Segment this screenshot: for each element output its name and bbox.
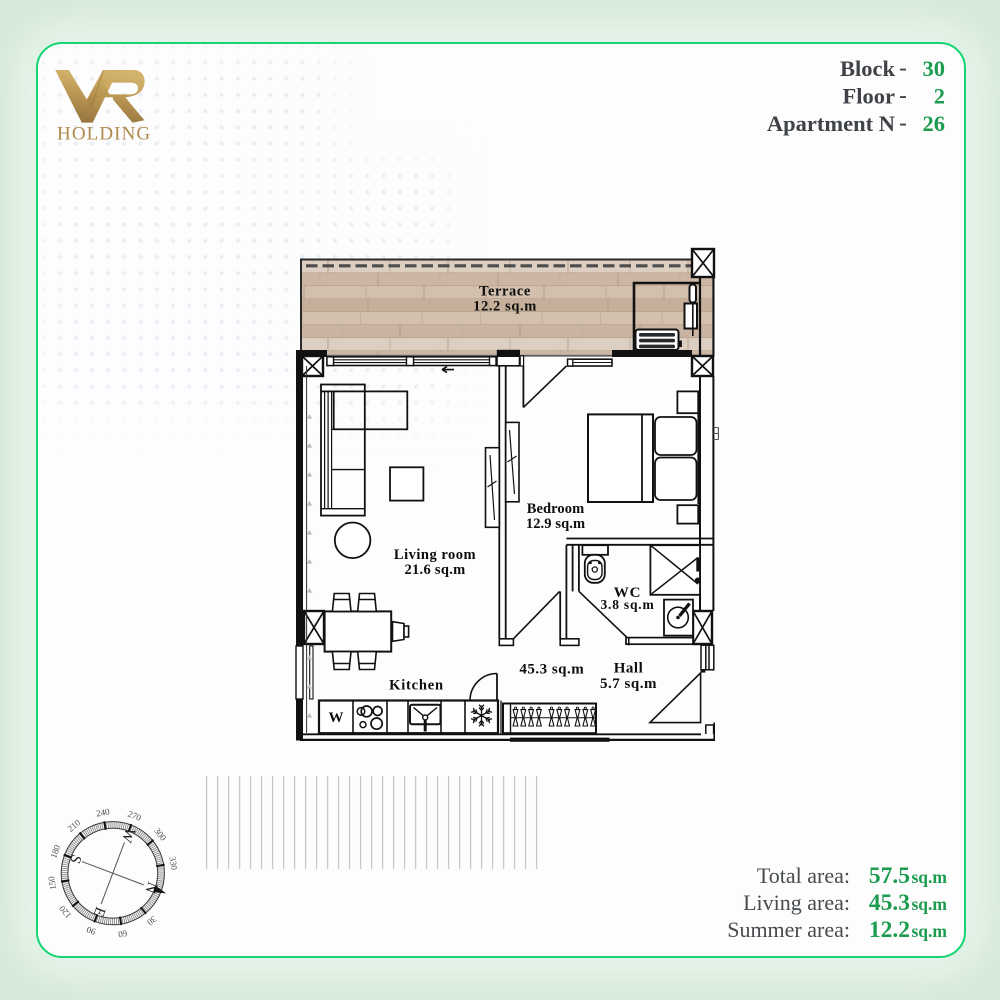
svg-text:12.2: 12.2 [869,917,910,943]
svg-text:3.8 sq.m: 3.8 sq.m [600,597,654,612]
svg-text:E: E [90,905,108,919]
svg-text:30: 30 [145,914,159,928]
svg-text:sq.m: sq.m [912,867,948,887]
svg-text:Living area:: Living area: [743,890,850,915]
svg-text:Floor: Floor [843,84,895,109]
svg-text:240: 240 [95,806,110,818]
svg-text:-: - [899,110,907,135]
svg-text:Kitchen: Kitchen [389,677,444,693]
svg-text:Living room: Living room [394,547,476,563]
svg-text:Summer area:: Summer area: [727,917,850,942]
svg-text:60: 60 [117,928,128,939]
svg-text:330: 330 [167,856,179,871]
svg-text:2: 2 [934,84,945,109]
svg-text:21.6 sq.m: 21.6 sq.m [404,562,465,578]
svg-text:150: 150 [46,875,58,890]
svg-text:Terrace: Terrace [479,284,531,300]
svg-text:12.9 sq.m: 12.9 sq.m [526,516,585,532]
svg-text:120: 120 [57,903,74,920]
svg-text:W: W [329,710,344,726]
svg-text:Total area:: Total area: [757,863,850,888]
svg-text:-: - [899,83,907,108]
svg-text:Bedroom: Bedroom [527,501,585,517]
svg-text:sq.m: sq.m [912,894,948,914]
svg-text:Apartment N: Apartment N [767,111,895,136]
svg-text:sq.m: sq.m [912,921,948,941]
svg-text:270: 270 [126,809,143,823]
svg-text:45.3 sq.m: 45.3 sq.m [519,662,584,678]
svg-text:12.2 sq.m: 12.2 sq.m [473,299,537,315]
svg-text:-: - [899,55,907,80]
svg-text:5.7 sq.m: 5.7 sq.m [600,676,657,692]
svg-text:45.3: 45.3 [869,890,910,916]
svg-text:30: 30 [923,56,946,81]
svg-text:26: 26 [923,111,946,136]
svg-text:300: 300 [152,826,169,843]
svg-text:180: 180 [48,843,62,860]
svg-text:Block: Block [840,56,895,81]
svg-text:210: 210 [66,817,83,834]
svg-text:Hall: Hall [614,661,644,677]
svg-text:90: 90 [85,924,97,937]
svg-text:57.5: 57.5 [869,863,910,889]
svg-text:HOLDING: HOLDING [57,123,151,144]
